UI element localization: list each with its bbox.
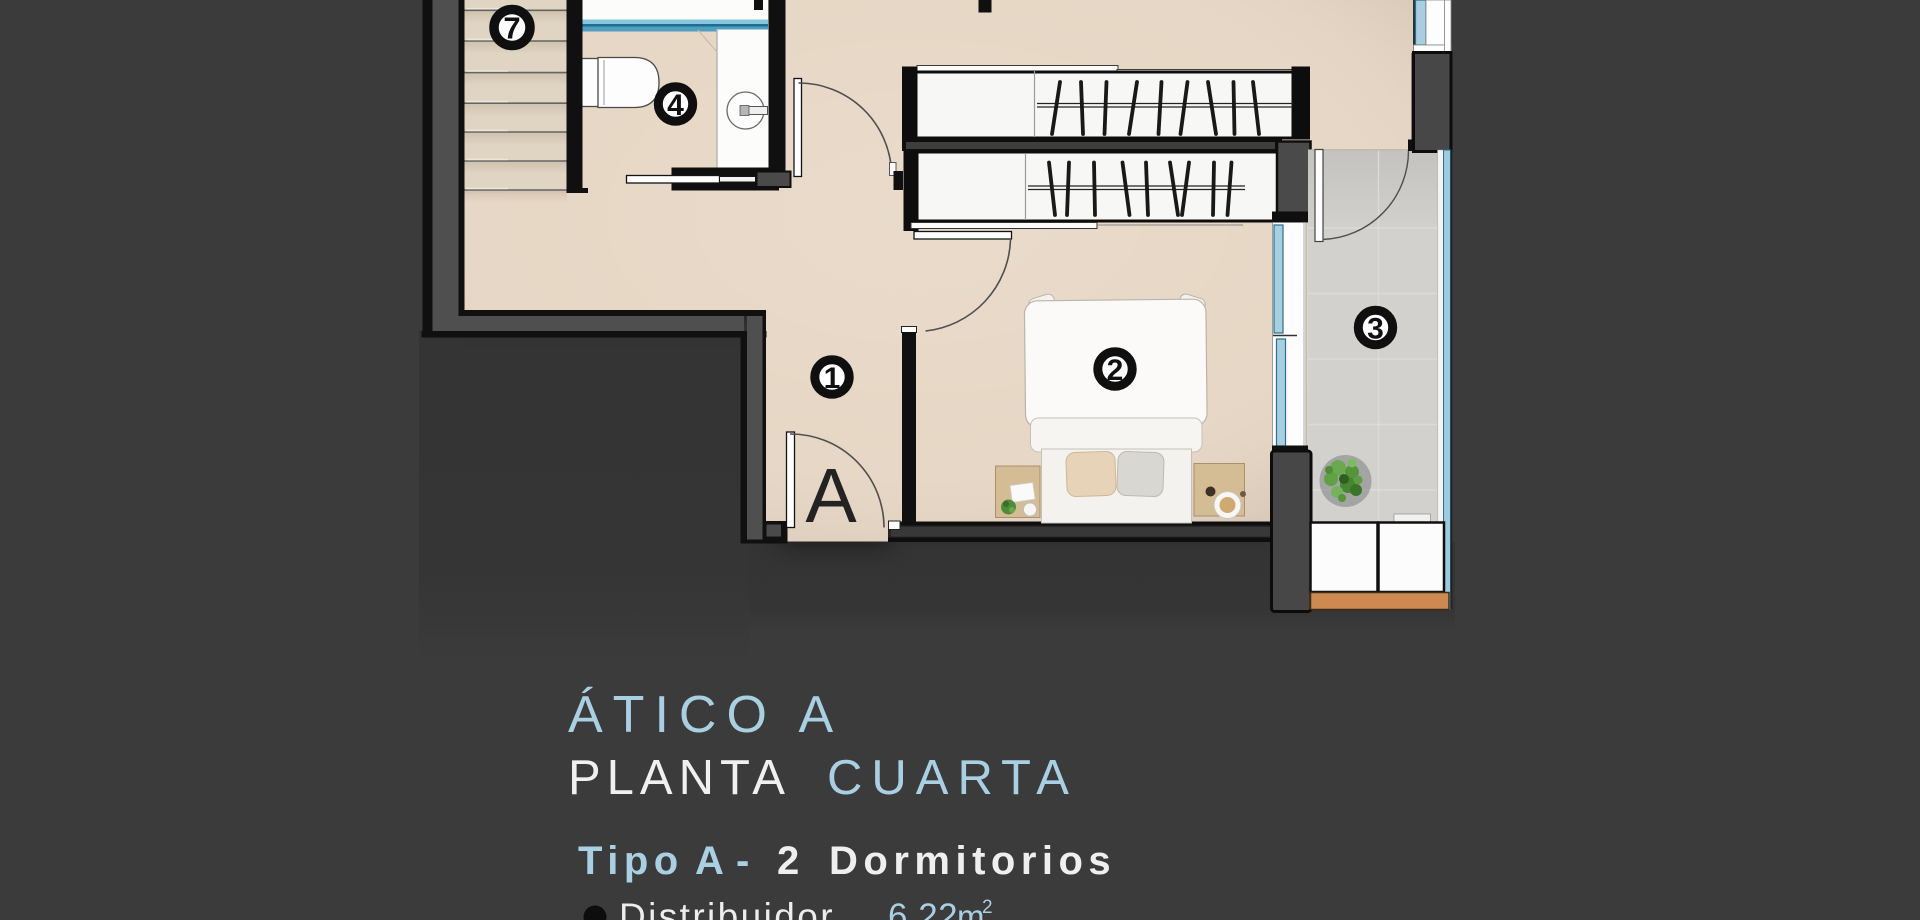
svg-text:1: 1 bbox=[824, 362, 841, 395]
svg-text:CUARTA: CUARTA bbox=[827, 751, 1078, 805]
svg-text:Distribuidor: Distribuidor bbox=[619, 896, 835, 920]
svg-text:A: A bbox=[805, 453, 857, 539]
svg-text:4: 4 bbox=[667, 89, 684, 122]
svg-text:A: A bbox=[695, 839, 724, 883]
svg-text:2: 2 bbox=[1107, 354, 1124, 387]
svg-text:Dormitorios: Dormitorios bbox=[829, 839, 1116, 883]
svg-text:2: 2 bbox=[777, 839, 799, 883]
svg-text:Tipo: Tipo bbox=[578, 839, 684, 883]
svg-text:ÁTICO A: ÁTICO A bbox=[568, 686, 843, 744]
svg-text:PLANTA: PLANTA bbox=[568, 751, 791, 805]
svg-text:2: 2 bbox=[982, 897, 993, 918]
svg-text:m: m bbox=[957, 898, 985, 920]
svg-text:3: 3 bbox=[1367, 312, 1384, 345]
svg-text:7: 7 bbox=[503, 11, 520, 46]
svg-text:6.22: 6.22 bbox=[888, 897, 958, 920]
svg-text:-: - bbox=[736, 839, 749, 883]
